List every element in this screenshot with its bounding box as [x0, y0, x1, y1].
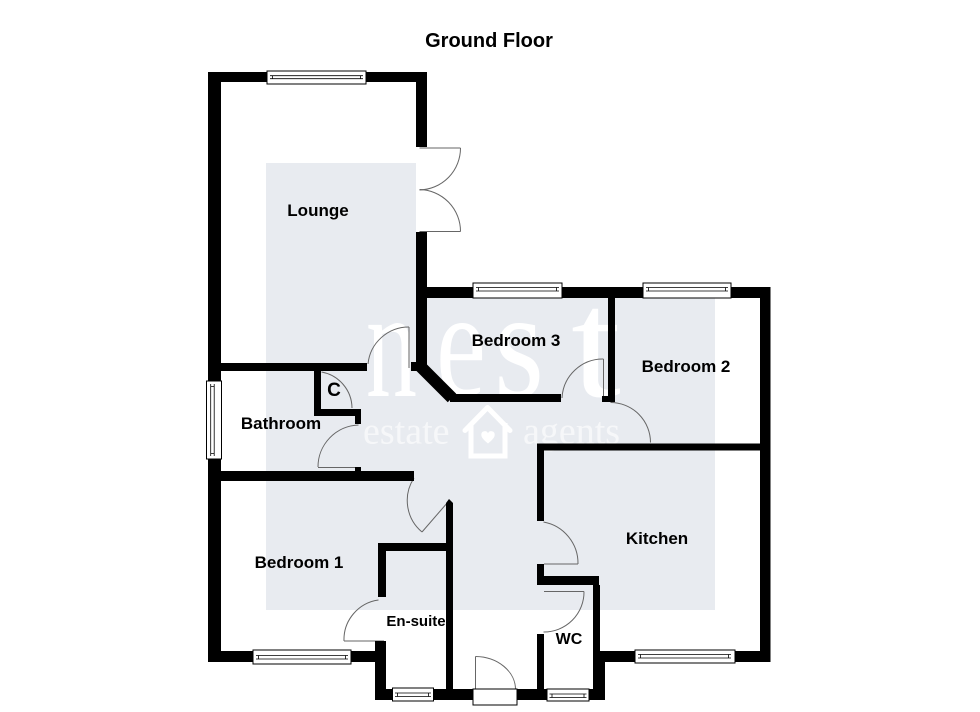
svg-text:Bathroom: Bathroom — [241, 414, 321, 433]
svg-text:Kitchen: Kitchen — [626, 529, 688, 548]
svg-text:En-suite: En-suite — [386, 613, 445, 630]
svg-text:Bedroom 3: Bedroom 3 — [472, 331, 561, 350]
svg-text:Bedroom 1: Bedroom 1 — [255, 553, 344, 572]
svg-text:C: C — [327, 380, 341, 401]
svg-text:estate: estate — [363, 411, 450, 453]
svg-text:Bedroom 2: Bedroom 2 — [642, 357, 731, 376]
svg-text:Lounge: Lounge — [287, 201, 348, 220]
svg-text:Ground Floor: Ground Floor — [425, 30, 553, 52]
svg-text:WC: WC — [556, 631, 583, 648]
